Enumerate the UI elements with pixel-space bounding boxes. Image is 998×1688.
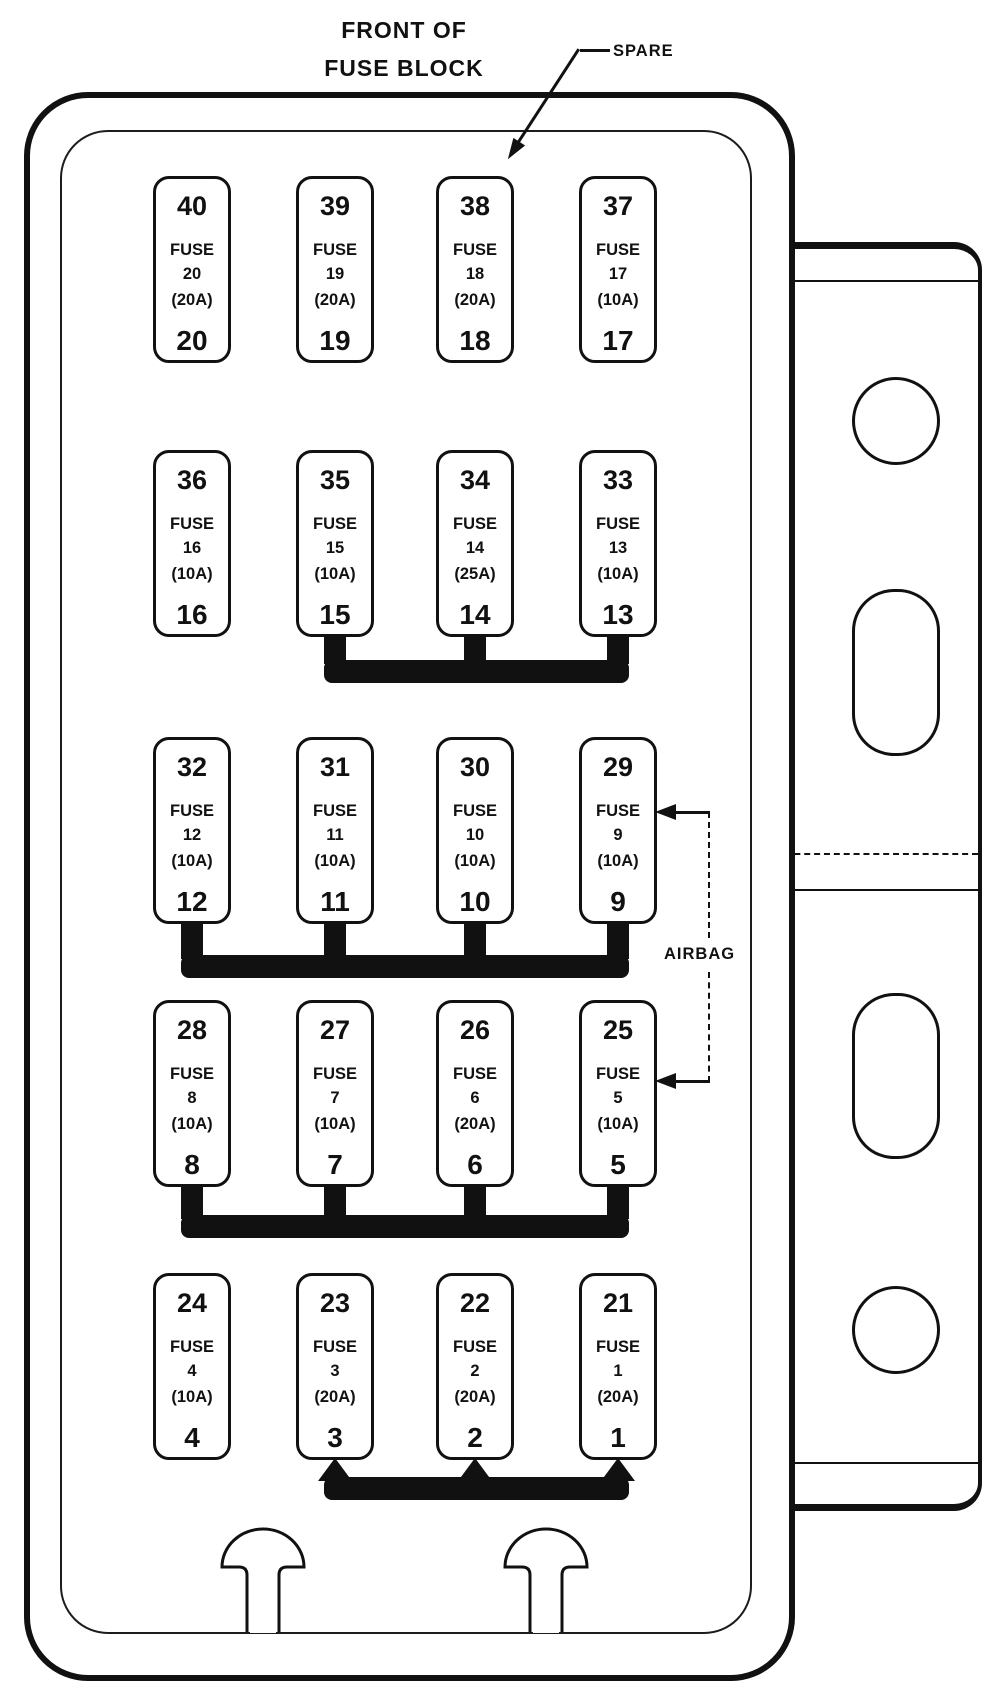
bus-stub [607,1185,629,1219]
fuse-amp-rating: (25A) [439,565,511,584]
fuse-cell-35: 35 FUSE 15 (10A) 15 [296,450,374,637]
fuse-cell-29: 29 FUSE 9 (10A) 9 [579,737,657,924]
fuse-number: 14 [439,599,511,631]
fuse-label: FUSE [299,802,371,821]
airbag-arrowhead-top-icon [655,804,676,820]
fuse-label: FUSE [582,1338,654,1357]
fuse-cavity-number: 30 [439,752,511,783]
fuse-amp-rating: (20A) [439,1115,511,1134]
airbag-bracket-line-upper [708,812,710,938]
fuse-amp-rating: (10A) [156,852,228,871]
fuse-circuit-number: 9 [582,826,654,845]
fuse-cavity-number: 24 [156,1288,228,1319]
fuse-number: 20 [156,325,228,357]
fuse-number: 11 [299,886,371,918]
fuse-number: 12 [156,886,228,918]
spare-leader-tick [580,49,610,52]
fuse-circuit-number: 20 [156,265,228,284]
fuse-label: FUSE [299,241,371,260]
fuse-circuit-number: 16 [156,539,228,558]
bus-bar [324,660,629,683]
fuse-number: 3 [299,1422,371,1454]
bus-stub [464,922,486,959]
fuse-cell-34: 34 FUSE 14 (25A) 14 [436,450,514,637]
fuse-number: 16 [156,599,228,631]
fuse-label: FUSE [299,1338,371,1357]
fuse-amp-rating: (20A) [299,1388,371,1407]
fuse-amp-rating: (20A) [299,291,371,310]
fuse-amp-rating: (10A) [582,291,654,310]
fuse-amp-rating: (10A) [299,1115,371,1134]
fuse-cell-24: 24 FUSE 4 (10A) 4 [153,1273,231,1460]
fuse-number: 5 [582,1149,654,1181]
fuse-amp-rating: (10A) [156,565,228,584]
fuse-number: 8 [156,1149,228,1181]
fuse-circuit-number: 1 [582,1362,654,1381]
fuse-block-diagram: FRONT OF FUSE BLOCK 40 FUSE 20 (20A) 20 … [0,0,998,1688]
bus-stub [324,922,346,959]
fuse-cavity-number: 32 [156,752,228,783]
fuse-cell-33: 33 FUSE 13 (10A) 13 [579,450,657,637]
mounting-tab-left [217,1527,309,1632]
fuse-circuit-number: 2 [439,1362,511,1381]
fuse-cavity-number: 33 [582,465,654,496]
fuse-circuit-number: 14 [439,539,511,558]
fuse-amp-rating: (20A) [582,1388,654,1407]
fuse-label: FUSE [156,802,228,821]
fuse-label: FUSE [439,802,511,821]
fuse-circuit-number: 19 [299,265,371,284]
fuse-amp-rating: (20A) [439,1388,511,1407]
fuse-cavity-number: 28 [156,1015,228,1046]
fuse-amp-rating: (10A) [582,852,654,871]
fuse-circuit-number: 12 [156,826,228,845]
fuse-number: 18 [439,325,511,357]
fuse-label: FUSE [439,515,511,534]
bus-stub [324,1185,346,1219]
mounting-tab-right [500,1527,592,1632]
fuse-number: 7 [299,1149,371,1181]
fuse-label: FUSE [582,1065,654,1084]
bracket-hole-circle-bottom [852,1286,940,1374]
fuse-cavity-number: 22 [439,1288,511,1319]
bus-stub [181,922,203,959]
bus-stub [464,1185,486,1219]
fuse-cavity-number: 29 [582,752,654,783]
fuse-cell-38: 38 FUSE 18 (20A) 18 [436,176,514,363]
fuse-cavity-number: 39 [299,191,371,222]
fuse-label: FUSE [156,1338,228,1357]
fuse-amp-rating: (10A) [439,852,511,871]
fuse-circuit-number: 11 [299,826,371,845]
fuse-cell-25: 25 FUSE 5 (10A) 5 [579,1000,657,1187]
fuse-circuit-number: 7 [299,1089,371,1108]
airbag-bracket-line-lower [708,972,710,1082]
fuse-circuit-number: 18 [439,265,511,284]
fuse-amp-rating: (10A) [156,1115,228,1134]
airbag-leader-bottom [676,1080,710,1083]
fuse-cavity-number: 38 [439,191,511,222]
airbag-label: AIRBAG [664,945,735,964]
fuse-number: 15 [299,599,371,631]
fuse-circuit-number: 15 [299,539,371,558]
fuse-amp-rating: (10A) [582,1115,654,1134]
fuse-label: FUSE [156,241,228,260]
airbag-arrowhead-bottom-icon [655,1073,676,1089]
fuse-cell-22: 22 FUSE 2 (20A) 2 [436,1273,514,1460]
fuse-cavity-number: 26 [439,1015,511,1046]
fuse-cell-37: 37 FUSE 17 (10A) 17 [579,176,657,363]
fuse-cavity-number: 37 [582,191,654,222]
fuse-cavity-number: 25 [582,1015,654,1046]
bus-stub [181,1185,203,1219]
bus-bar [181,955,629,978]
fuse-number: 6 [439,1149,511,1181]
fuse-cavity-number: 31 [299,752,371,783]
fuse-number: 17 [582,325,654,357]
fuse-cavity-number: 27 [299,1015,371,1046]
bracket-slot-oval-lower [852,993,940,1159]
fuse-label: FUSE [582,515,654,534]
fuse-label: FUSE [582,241,654,260]
fuse-cell-26: 26 FUSE 6 (20A) 6 [436,1000,514,1187]
fuse-number: 1 [582,1422,654,1454]
fuse-amp-rating: (10A) [156,1388,228,1407]
bus-bar [181,1215,629,1238]
fuse-number: 10 [439,886,511,918]
fuse-cell-21: 21 FUSE 1 (20A) 1 [579,1273,657,1460]
fuse-label: FUSE [299,1065,371,1084]
fuse-cavity-number: 23 [299,1288,371,1319]
fuse-circuit-number: 3 [299,1362,371,1381]
fuse-number: 2 [439,1422,511,1454]
bracket-hole-circle-top [852,377,940,465]
fuse-cell-27: 27 FUSE 7 (10A) 7 [296,1000,374,1187]
fuse-cavity-number: 21 [582,1288,654,1319]
fuse-amp-rating: (10A) [299,852,371,871]
fuse-label: FUSE [439,1338,511,1357]
bus-bar [324,1477,629,1500]
fuse-circuit-number: 5 [582,1089,654,1108]
fuse-label: FUSE [439,241,511,260]
airbag-leader-top [676,811,710,814]
fuse-cell-39: 39 FUSE 19 (20A) 19 [296,176,374,363]
fuse-cell-30: 30 FUSE 10 (10A) 10 [436,737,514,924]
fuse-number: 4 [156,1422,228,1454]
fuse-number: 9 [582,886,654,918]
bus-stub [607,922,629,959]
fuse-cavity-number: 36 [156,465,228,496]
spare-label: SPARE [613,42,674,61]
fuse-label: FUSE [582,802,654,821]
fuse-circuit-number: 13 [582,539,654,558]
fuse-amp-rating: (20A) [439,291,511,310]
fuse-cavity-number: 34 [439,465,511,496]
fuse-circuit-number: 17 [582,265,654,284]
fuse-number: 19 [299,325,371,357]
fuse-cell-31: 31 FUSE 11 (10A) 11 [296,737,374,924]
fuse-circuit-number: 10 [439,826,511,845]
bracket-slot-oval-upper [852,589,940,756]
fuse-label: FUSE [299,515,371,534]
fuse-cavity-number: 40 [156,191,228,222]
fuse-circuit-number: 4 [156,1362,228,1381]
fuse-label: FUSE [156,1065,228,1084]
fuse-number: 13 [582,599,654,631]
fuse-circuit-number: 8 [156,1089,228,1108]
fuse-amp-rating: (10A) [299,565,371,584]
fuse-amp-rating: (10A) [582,565,654,584]
fuse-cell-23: 23 FUSE 3 (20A) 3 [296,1273,374,1460]
fuse-cell-40: 40 FUSE 20 (20A) 20 [153,176,231,363]
fuse-cavity-number: 35 [299,465,371,496]
fuse-circuit-number: 6 [439,1089,511,1108]
fuse-label: FUSE [439,1065,511,1084]
fuse-amp-rating: (20A) [156,291,228,310]
fuse-cell-32: 32 FUSE 12 (10A) 12 [153,737,231,924]
fuse-cell-28: 28 FUSE 8 (10A) 8 [153,1000,231,1187]
fuse-cell-36: 36 FUSE 16 (10A) 16 [153,450,231,637]
fuse-label: FUSE [156,515,228,534]
